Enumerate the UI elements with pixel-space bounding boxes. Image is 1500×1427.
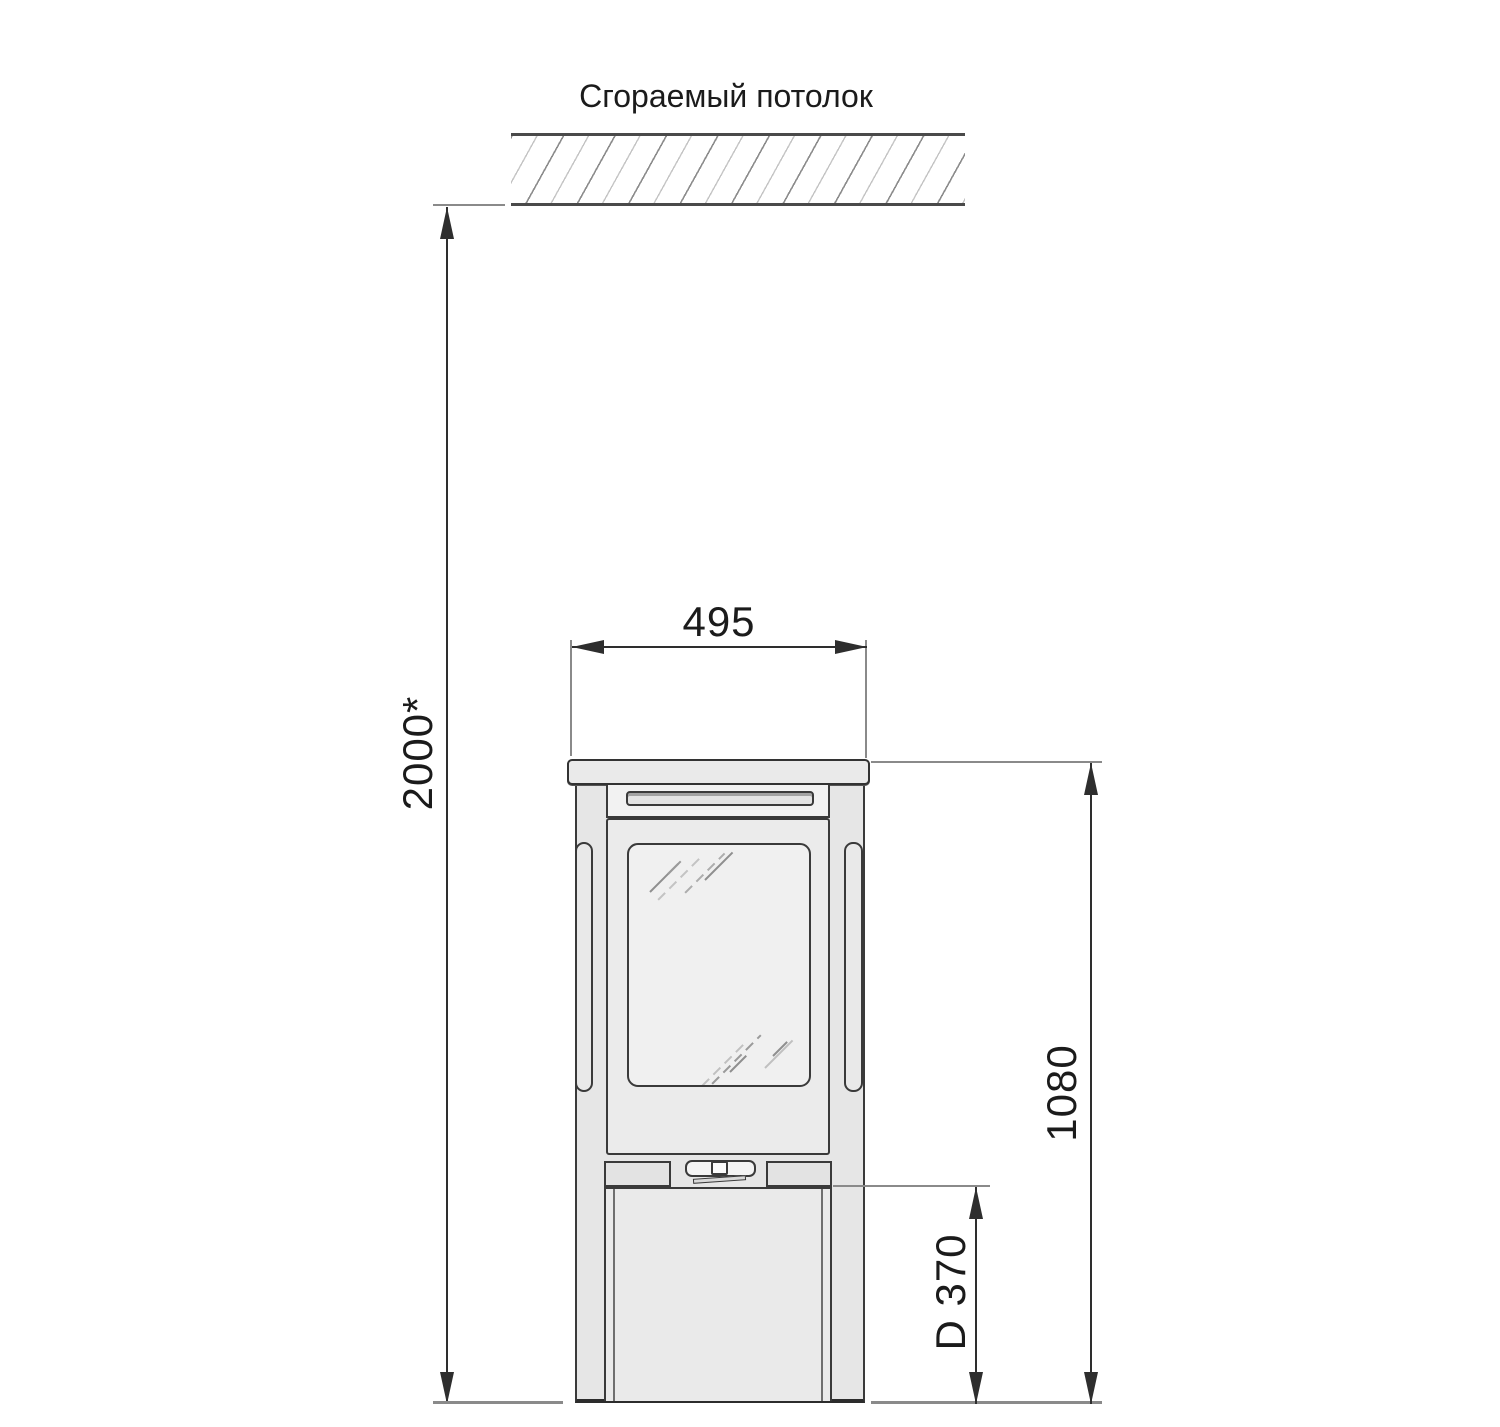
height-dim-line	[1090, 763, 1092, 1404]
stove-handle-bar-left	[604, 1161, 671, 1187]
pedestal-inner-line-left	[613, 1189, 615, 1401]
clearance-dim-label: 2000*	[394, 696, 442, 811]
ceiling-label: Сгораемый потолок	[510, 78, 942, 115]
width-arrow-right-icon	[835, 640, 867, 654]
width-dim-label: 495	[682, 598, 755, 646]
stove-side-trim-left	[575, 842, 593, 1092]
pedestal-inner-line-right	[821, 1189, 823, 1401]
clearance-arrow-up-icon	[440, 207, 454, 239]
stove-pedestal-panel	[604, 1187, 832, 1401]
flue-arrow-down-icon	[969, 1372, 983, 1404]
height-arrow-down-icon	[1084, 1372, 1098, 1404]
stove-latch-knob	[711, 1161, 728, 1175]
glass-reflection	[684, 853, 725, 894]
width-extension-right	[865, 640, 867, 758]
glass-reflection	[772, 1041, 788, 1057]
stove-side-trim-right	[844, 842, 863, 1092]
stove-handle-bar-right	[766, 1161, 832, 1187]
width-dim-line	[572, 646, 867, 648]
flue-dim-label: D 370	[927, 1233, 975, 1350]
height-arrow-up-icon	[1084, 763, 1098, 795]
stove-door-glass	[627, 843, 811, 1087]
clearance-dim-line	[446, 207, 448, 1404]
ceiling-hatch-band	[511, 133, 965, 206]
floor-line-left	[433, 1401, 563, 1404]
stove-top-plate	[567, 759, 870, 785]
clearance-extension-tick	[433, 204, 505, 206]
width-extension-left	[570, 640, 572, 756]
stove-vent-slot	[626, 791, 814, 806]
flue-arrow-up-icon	[969, 1187, 983, 1219]
clearance-arrow-down-icon	[440, 1372, 454, 1404]
height-extension-line	[871, 761, 1102, 763]
width-arrow-left-icon	[572, 640, 604, 654]
height-dim-label: 1080	[1038, 1044, 1086, 1141]
glass-reflection	[667, 861, 681, 875]
floor-line-right	[871, 1401, 1102, 1404]
stove-clearance-diagram: Сгораемый потолок 2000* 495	[0, 0, 1500, 1427]
glass-reflection	[701, 1041, 746, 1086]
glass-reflection	[764, 1040, 793, 1069]
glass-reflection	[711, 1035, 761, 1085]
flue-extension-line	[833, 1185, 990, 1187]
